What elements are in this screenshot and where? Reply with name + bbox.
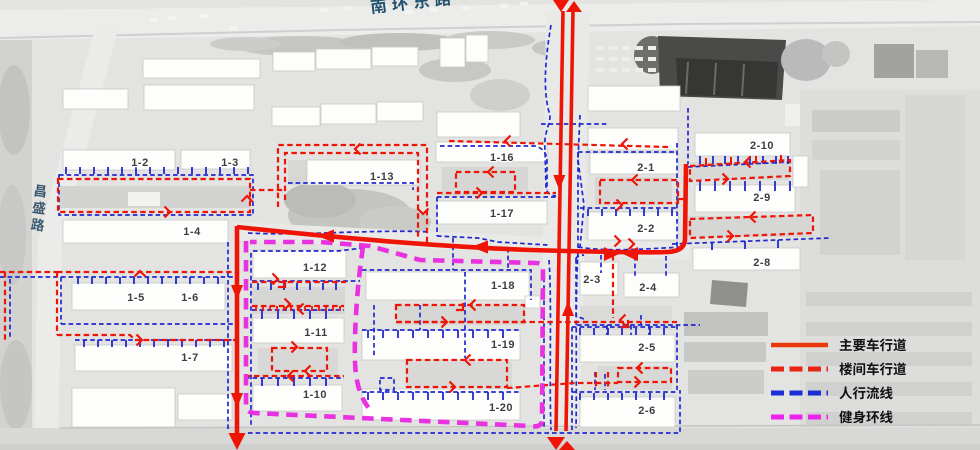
svg-text:1-20: 1-20 <box>489 402 513 414</box>
svg-text:1-19: 1-19 <box>491 339 515 351</box>
svg-text:1-13: 1-13 <box>370 171 394 183</box>
svg-text:2-9: 2-9 <box>753 192 770 204</box>
svg-text:1-6: 1-6 <box>181 292 198 304</box>
svg-text:2-4: 2-4 <box>639 282 657 294</box>
svg-text:2-2: 2-2 <box>637 223 654 235</box>
svg-text:1-5: 1-5 <box>127 292 144 304</box>
svg-text:2-5: 2-5 <box>638 342 655 354</box>
svg-text:1-12: 1-12 <box>303 262 327 274</box>
svg-text:1-18: 1-18 <box>491 280 515 292</box>
svg-text:1-2: 1-2 <box>131 157 148 169</box>
svg-text:1-17: 1-17 <box>490 208 514 220</box>
svg-text:1-10: 1-10 <box>303 389 327 401</box>
svg-text:1-7: 1-7 <box>181 352 198 364</box>
svg-text:1-4: 1-4 <box>183 226 201 238</box>
svg-text:2-1: 2-1 <box>637 162 654 174</box>
svg-text:2-3: 2-3 <box>583 274 600 286</box>
svg-text:1-16: 1-16 <box>490 152 514 164</box>
svg-text:2-6: 2-6 <box>638 405 655 417</box>
svg-text:1-3: 1-3 <box>221 157 238 169</box>
svg-text:2-8: 2-8 <box>753 257 770 269</box>
svg-text:2-10: 2-10 <box>750 140 774 152</box>
svg-text:1-11: 1-11 <box>304 327 327 339</box>
